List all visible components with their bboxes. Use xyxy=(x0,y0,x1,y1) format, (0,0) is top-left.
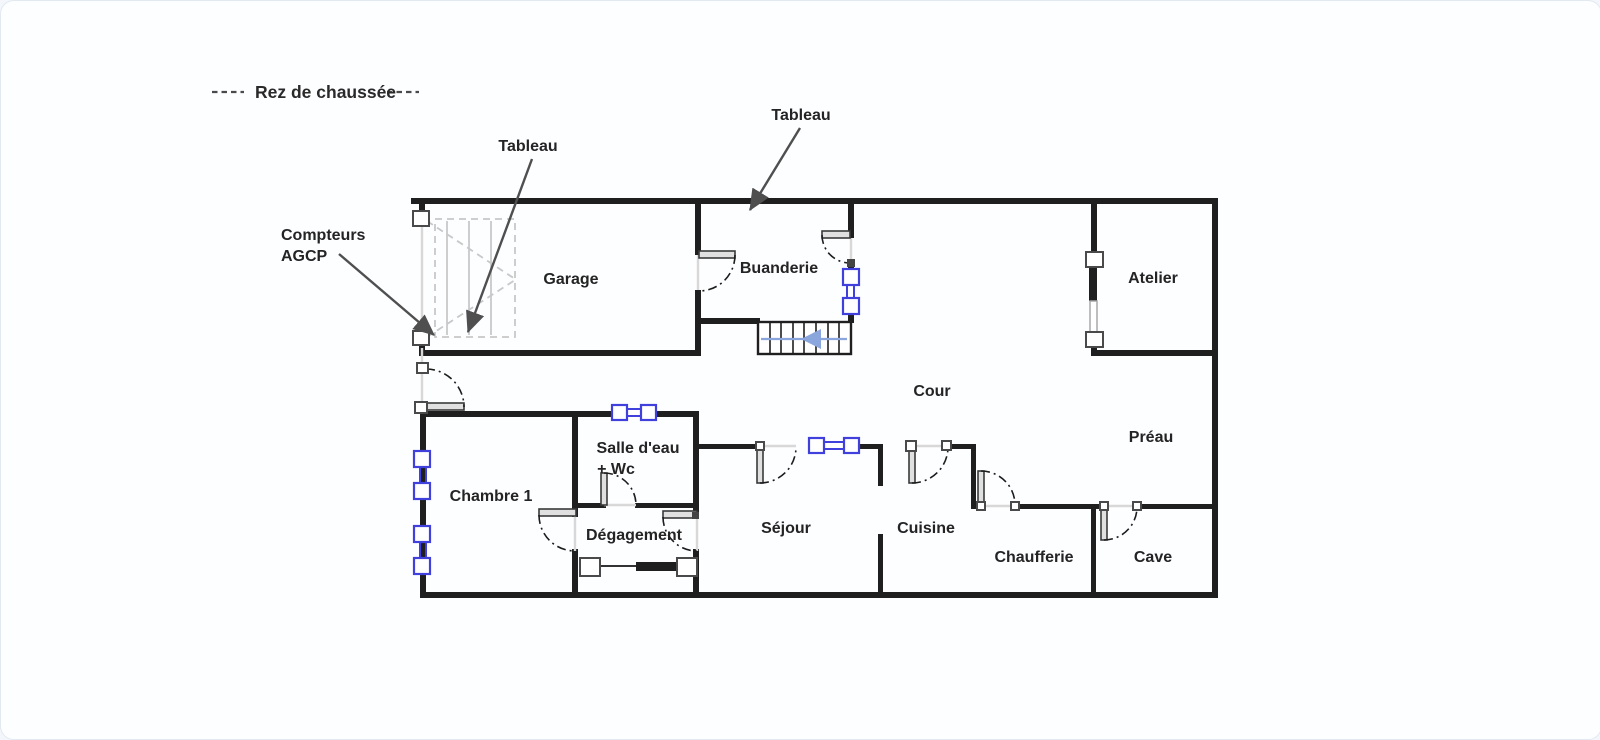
sejour-window xyxy=(809,438,859,453)
wall-chaufferie-top-b xyxy=(1015,504,1095,509)
atelier-door xyxy=(1086,252,1103,347)
sejour-door-leaf xyxy=(757,447,763,483)
window-frame-square xyxy=(809,438,824,453)
wall-chaufferie-cave-divider xyxy=(1091,504,1096,598)
room-label-chambre1: Chambre 1 xyxy=(450,488,533,505)
chaufferie-door-leaf xyxy=(978,471,984,505)
room-label-preau: Préau xyxy=(1129,429,1173,446)
window-frame-square xyxy=(843,269,859,285)
room-label-cave: Cave xyxy=(1134,549,1172,566)
staircase xyxy=(758,322,851,354)
chaufferie-door-marker xyxy=(977,502,985,510)
garage-door-swing-diagonal xyxy=(427,221,515,279)
closet-post xyxy=(677,558,697,576)
sejour-door-marker xyxy=(756,442,764,450)
wall-sejour-cuisine-div-a xyxy=(878,444,883,486)
window-frame-square xyxy=(414,483,430,499)
annotation-tableau-garage: Tableau xyxy=(498,138,557,155)
entry-door-hinge-marker xyxy=(415,402,427,413)
annotation-labels: Tableau Tableau Compteurs AGCP xyxy=(281,107,831,265)
cuisine-door-marker xyxy=(942,441,951,450)
window-frame-square xyxy=(612,405,627,420)
room-label-garage: Garage xyxy=(543,271,598,288)
garage-door-end-marker xyxy=(413,331,429,345)
garage-door-swing-diagonal xyxy=(427,280,515,337)
cave-door-leaf xyxy=(1101,507,1107,540)
wall-atelier-bottom xyxy=(1091,350,1218,356)
wall-garage-divider-top xyxy=(695,198,701,255)
window-frame-square xyxy=(414,558,430,574)
sejour-door-arc xyxy=(760,447,796,483)
chaufferie-door-arc xyxy=(981,471,1015,505)
window-frame-square xyxy=(843,298,859,314)
atelier-door-end-marker xyxy=(1086,252,1103,267)
wall-deg-sejour-divider-a xyxy=(693,444,699,519)
closet-panel xyxy=(636,562,678,571)
buanderie-door-hinge-marker xyxy=(847,259,855,267)
compteurs-agcp-arrow xyxy=(339,254,434,335)
wall-salle-deg-divider-b xyxy=(572,549,578,598)
buanderie-right-door-arc xyxy=(822,235,850,263)
wall-buanderie-bottom xyxy=(698,318,760,324)
degagement-door-hinge-marker xyxy=(692,512,699,519)
atelier-door-end-marker xyxy=(1086,332,1103,347)
salle-eau-window xyxy=(612,405,656,420)
window-frame-square xyxy=(414,451,430,467)
wall-chambre-top xyxy=(420,411,699,417)
cave-door-marker xyxy=(1133,502,1141,510)
floor-plan-canvas: Rez de chaussée Garage Buanderie Atelier… xyxy=(0,0,1600,740)
wall-garage-bottom xyxy=(419,350,701,356)
tableau-buanderie-arrow xyxy=(750,128,800,210)
annotation-compteurs-line2: AGCP xyxy=(281,248,328,265)
entry-door-leaf xyxy=(425,403,464,410)
wall-bottom xyxy=(420,592,1218,598)
room-label-chaufferie: Chaufferie xyxy=(994,549,1073,566)
window-frame-square xyxy=(844,438,859,453)
degagement-closet xyxy=(580,558,697,576)
buanderie-left-door-arc xyxy=(699,255,735,291)
room-label-degagement: Dégagement xyxy=(586,527,683,544)
window-frame-square xyxy=(414,526,430,542)
wall-atelier-left-top xyxy=(1091,198,1097,258)
room-label-cuisine: Cuisine xyxy=(897,520,955,537)
chambre-degagement-door-leaf xyxy=(539,509,576,516)
tableau-garage-arrow xyxy=(468,159,532,332)
entry-door-arc xyxy=(426,369,464,407)
floor-plan-svg: Rez de chaussée Garage Buanderie Atelier… xyxy=(1,1,1600,739)
closet-post xyxy=(580,558,600,576)
room-label-salle-eau-line1: Salle d'eau xyxy=(597,440,680,457)
cave-door-marker xyxy=(1100,502,1108,510)
plan-title: Rez de chaussée xyxy=(212,82,419,102)
wall-sejour-cuisine-div-b xyxy=(878,534,883,598)
room-label-sejour: Séjour xyxy=(761,520,811,537)
buanderie-left-door-leaf xyxy=(699,251,735,258)
buanderie-right-door-leaf xyxy=(822,231,850,238)
wall-salle-deg-divider-a xyxy=(572,411,578,517)
room-label-atelier: Atelier xyxy=(1128,270,1178,287)
cuisine-door-arc xyxy=(912,447,948,483)
floor-title: Rez de chaussée xyxy=(255,82,396,102)
cuisine-door-marker xyxy=(906,441,916,451)
annotation-compteurs-line1: Compteurs xyxy=(281,227,366,244)
atelier-door-dark-leaf xyxy=(1089,265,1097,301)
chaufferie-door-marker xyxy=(1011,502,1019,510)
wall-end-markers xyxy=(413,211,1141,519)
wall-right xyxy=(1212,198,1218,598)
degagement-sejour-door-leaf xyxy=(663,511,697,518)
window-frame-square xyxy=(641,405,656,420)
room-label-salle-eau-line2: + Wc xyxy=(597,461,635,478)
chambre-degagement-door-arc xyxy=(539,515,575,551)
annotation-arrows xyxy=(339,128,800,335)
cuisine-door-leaf xyxy=(909,447,915,483)
entry-door-end-marker xyxy=(417,363,428,373)
wall-sejour-top-a xyxy=(695,444,761,449)
wall-salle-bottom-b xyxy=(635,503,699,508)
wall-cave-top-b xyxy=(1136,504,1218,509)
room-label-buanderie: Buanderie xyxy=(740,260,818,277)
garage-door-symbol xyxy=(427,219,515,337)
garage-door-end-marker xyxy=(413,211,429,226)
cave-door-arc xyxy=(1104,507,1137,540)
room-label-cour: Cour xyxy=(913,383,950,400)
wall-cuisine-right xyxy=(971,444,976,509)
buanderie-window xyxy=(843,269,859,314)
annotation-tableau-buanderie: Tableau xyxy=(771,107,830,124)
